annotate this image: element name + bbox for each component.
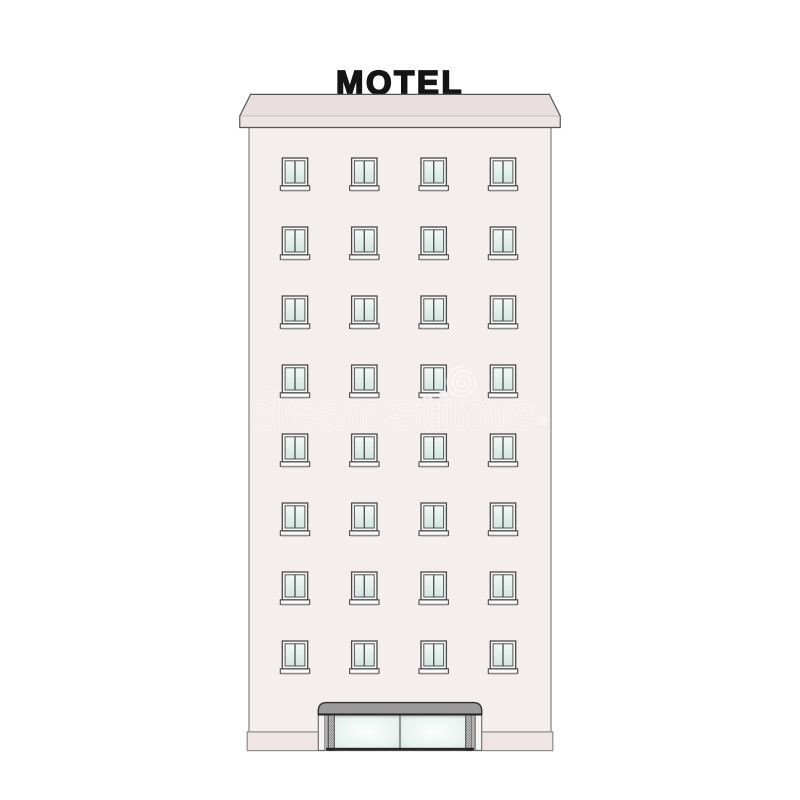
svg-text:stime: stime: [385, 386, 538, 439]
svg-text:dream: dream: [251, 386, 381, 439]
svg-text:R: R: [542, 420, 546, 426]
